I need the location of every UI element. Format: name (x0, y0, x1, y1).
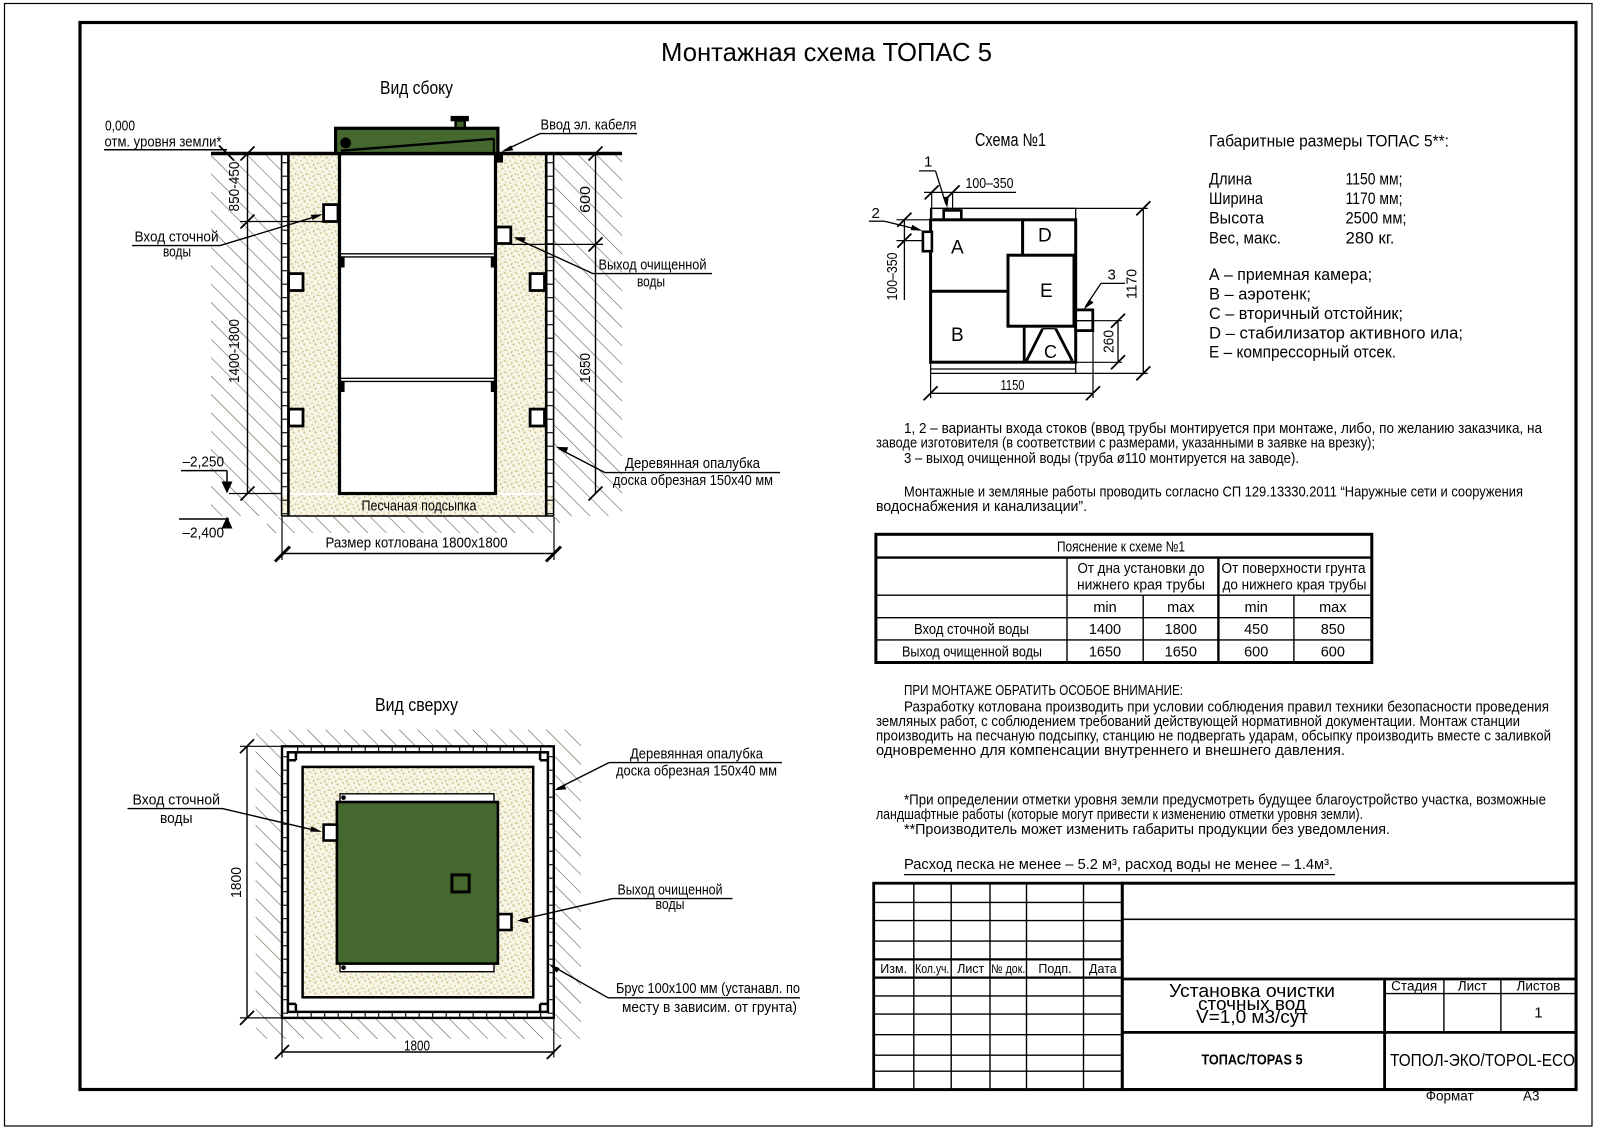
svg-text:Подп.: Подп. (1038, 962, 1071, 976)
svg-text:–2,250: –2,250 (183, 454, 225, 471)
svg-text:водоснабжения и канализации”.: водоснабжения и канализации”. (876, 499, 1087, 515)
svg-text:ПРИ МОНТАЖЕ ОБРАТИТЬ ОСОБОЕ ВН: ПРИ МОНТАЖЕ ОБРАТИТЬ ОСОБОЕ ВНИМАНИЕ: (904, 683, 1183, 699)
svg-text:2500 мм;: 2500 мм; (1346, 209, 1407, 228)
svg-text:Ввод эл. кабеля: Ввод эл. кабеля (541, 117, 637, 134)
svg-text:3: 3 (1108, 267, 1116, 284)
svg-text:1800: 1800 (1165, 622, 1197, 638)
svg-text:Размер котлована 1800х1800: Размер котлована 1800х1800 (326, 535, 508, 552)
svg-text:одновременно для компенсации в: одновременно для компенсации внутреннего… (876, 743, 1345, 759)
svg-text:Схема №1: Схема №1 (975, 130, 1046, 150)
svg-text:Габаритные размеры ТОПАС 5**:: Габаритные размеры ТОПАС 5**: (1209, 132, 1449, 151)
svg-text:заводе изготовителя (в соответ: заводе изготовителя (в соответствии с ра… (876, 436, 1375, 452)
svg-text:1650: 1650 (578, 353, 594, 383)
svg-text:Брус 100х100 мм (устанавл. по: Брус 100х100 мм (устанавл. по (616, 980, 800, 997)
svg-text:Лист: Лист (957, 962, 984, 976)
svg-text:280 кг.: 280 кг. (1346, 229, 1395, 248)
svg-text:100–350: 100–350 (966, 176, 1014, 192)
svg-text:1170: 1170 (1125, 269, 1141, 299)
svg-text:V=1,0 м3/сут: V=1,0 м3/сут (1196, 1006, 1309, 1027)
svg-text:600: 600 (1244, 645, 1268, 661)
svg-text:От дна установки до: От дна установки до (1078, 561, 1205, 577)
svg-text:1150: 1150 (1001, 378, 1025, 394)
svg-text:Е – компрессорный отсек.: Е – компрессорный отсек. (1209, 343, 1396, 362)
svg-text:Ширина: Ширина (1209, 189, 1263, 208)
svg-text:ландшафтные работы (которые мо: ландшафтные работы (которые могут привес… (876, 807, 1363, 823)
svg-text:1: 1 (1534, 1005, 1542, 1022)
svg-text:ТОПОЛ-ЭКО/TOPOL-ECO: ТОПОЛ-ЭКО/TOPOL-ECO (1390, 1050, 1575, 1070)
svg-text:600: 600 (578, 186, 594, 213)
svg-text:–2,400: –2,400 (183, 525, 225, 542)
svg-text:В – аэротенк;: В – аэротенк; (1209, 285, 1311, 304)
svg-text:A: A (951, 238, 964, 259)
svg-text:1150 мм;: 1150 мм; (1346, 170, 1403, 189)
svg-text:max: max (1319, 600, 1347, 616)
svg-text:max: max (1167, 600, 1195, 616)
svg-text:100–350: 100–350 (885, 253, 901, 301)
svg-text:Длина: Длина (1209, 170, 1252, 189)
svg-text:1400-1800: 1400-1800 (227, 319, 243, 383)
svg-text:1: 1 (924, 154, 932, 171)
svg-text:1800: 1800 (404, 1038, 430, 1055)
svg-text:Вход сточной воды: Вход сточной воды (914, 622, 1029, 638)
svg-text:min: min (1245, 600, 1268, 616)
svg-text:отм. уровня земли*: отм. уровня земли* (105, 135, 222, 151)
svg-text:850-450: 850-450 (227, 162, 243, 212)
svg-text:доска обрезная 150х40 мм: доска обрезная 150х40 мм (613, 472, 773, 489)
svg-text:№ док.: № док. (991, 962, 1025, 976)
svg-text:Деревянная опалубка: Деревянная опалубка (625, 455, 761, 472)
svg-text:1170 мм;: 1170 мм; (1346, 189, 1403, 208)
svg-text:доска обрезная 150х40 мм: доска обрезная 150х40 мм (616, 763, 777, 780)
svg-text:Вид сверху: Вид сверху (375, 695, 458, 715)
svg-text:600: 600 (1321, 645, 1345, 661)
svg-text:От поверхности грунта: От поверхности грунта (1222, 561, 1367, 577)
svg-text:850: 850 (1321, 622, 1345, 638)
svg-text:Стадия: Стадия (1391, 979, 1437, 994)
svg-text:Песчаная подсыпка: Песчаная подсыпка (362, 498, 478, 515)
svg-text:Выход очищенной: Выход очищенной (599, 257, 707, 274)
svg-text:Дата: Дата (1089, 962, 1117, 976)
svg-text:**Производитель может изменить: **Производитель может изменить габариты … (904, 822, 1390, 838)
svg-text:Изм.: Изм. (880, 962, 907, 976)
svg-text:Формат: Формат (1426, 1089, 1474, 1104)
svg-text:Вес, макс.: Вес, макс. (1209, 229, 1281, 248)
svg-text:Листов: Листов (1516, 979, 1560, 994)
svg-text:E: E (1040, 281, 1053, 302)
svg-text:1400: 1400 (1089, 622, 1121, 638)
svg-text:1800: 1800 (229, 867, 245, 898)
svg-text:1650: 1650 (1165, 645, 1197, 661)
svg-text:до нижнего края трубы: до нижнего края трубы (1223, 578, 1367, 594)
svg-text:воды: воды (637, 274, 665, 291)
svg-text:А3: А3 (1523, 1089, 1540, 1104)
svg-text:А – приемная камера;: А – приемная камера; (1209, 265, 1372, 284)
svg-text:Лист: Лист (1458, 979, 1487, 994)
svg-text:C: C (1044, 342, 1057, 362)
svg-text:Выход очищенной воды: Выход очищенной воды (902, 645, 1042, 661)
svg-text:min: min (1093, 600, 1116, 616)
svg-text:Вид сбоку: Вид сбоку (380, 78, 453, 98)
svg-text:Деревянная опалубка: Деревянная опалубка (630, 746, 764, 763)
svg-text:Монтажная схема ТОПАС 5: Монтажная схема ТОПАС 5 (661, 37, 992, 67)
svg-text:1650: 1650 (1089, 645, 1121, 661)
svg-text:воды: воды (160, 810, 193, 827)
svg-text:месту в зависим. от грунта): месту в зависим. от грунта) (622, 999, 797, 1016)
svg-text:260: 260 (1102, 330, 1118, 353)
svg-text:Пояснение к схеме №1: Пояснение к схеме №1 (1057, 540, 1185, 556)
svg-text:С – вторичный отстойник;: С – вторичный отстойник; (1209, 304, 1403, 323)
svg-text:D: D (1038, 226, 1052, 247)
svg-text:Вход сточной: Вход сточной (133, 792, 221, 809)
svg-text:2: 2 (872, 205, 880, 222)
svg-text:3 – выход очищенной воды (труб: 3 – выход очищенной воды (труба ø110 мон… (904, 451, 1299, 467)
svg-text:нижнего края трубы: нижнего края трубы (1077, 578, 1205, 594)
svg-text:B: B (951, 325, 964, 346)
svg-text:D – стабилизатор активного ила: D – стабилизатор активного ила; (1209, 324, 1463, 343)
svg-text:Расход песка не менее – 5.2 м³: Расход песка не менее – 5.2 м³, расход в… (904, 857, 1333, 873)
svg-text:450: 450 (1244, 622, 1268, 638)
svg-text:0,000: 0,000 (105, 118, 135, 135)
svg-text:Высота: Высота (1209, 209, 1265, 228)
svg-text:Кол.уч.: Кол.уч. (915, 962, 949, 976)
svg-text:ТОПАС/TOPAS 5: ТОПАС/TOPAS 5 (1202, 1052, 1303, 1069)
